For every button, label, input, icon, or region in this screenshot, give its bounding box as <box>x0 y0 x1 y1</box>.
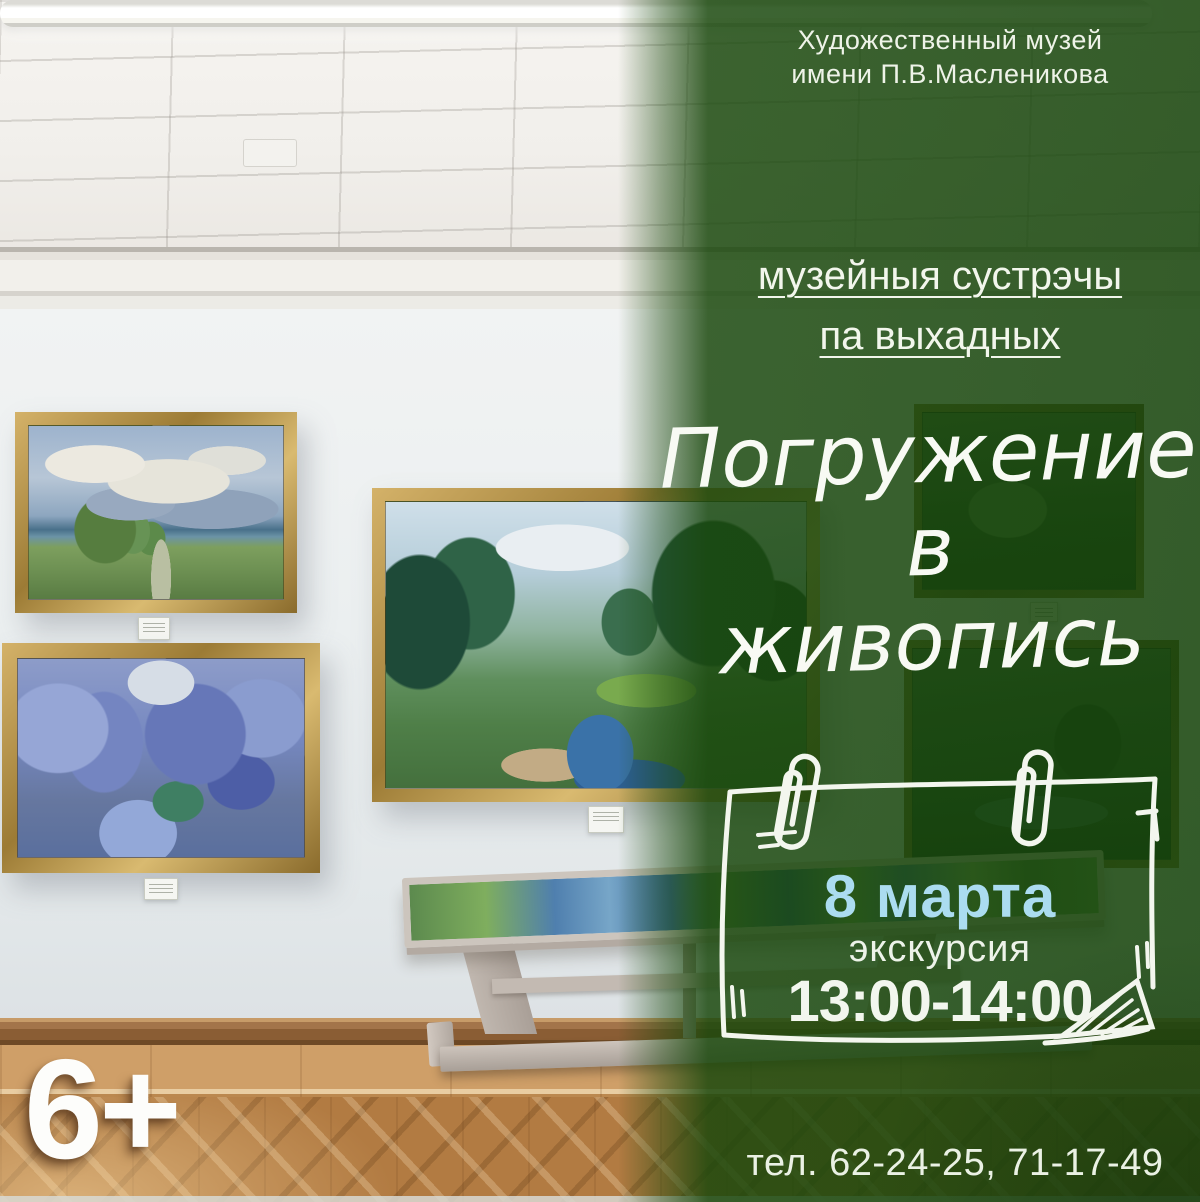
event-title: Погружение в живопись <box>647 402 1200 694</box>
series-heading: музейныя сустрэчы па выхадных <box>690 246 1190 366</box>
event-poster: Художественный музей имени П.В.Масленико… <box>0 0 1200 1202</box>
series-line1: музейныя сустрэчы <box>758 254 1122 298</box>
paperclip-icon <box>774 754 820 850</box>
paperclip-icon <box>1013 750 1052 845</box>
series-line2: па выхадных <box>820 314 1061 358</box>
age-rating-badge: 6+ <box>24 1028 244 1192</box>
event-date: 8 марта <box>720 862 1160 931</box>
event-title-line1: Погружение <box>647 402 1200 507</box>
phone-numbers: тел. 62-24-25, 71-17-49 <box>720 1142 1190 1185</box>
event-title-line2: в <box>649 496 1200 601</box>
event-kind: экскурсия <box>720 928 1160 971</box>
museum-name: Художественный музей имени П.В.Масленико… <box>700 24 1200 92</box>
museum-name-line1: Художественный музей <box>700 24 1200 58</box>
event-title-line3: живопись <box>651 589 1200 694</box>
museum-name-line2: имени П.В.Масленикова <box>700 58 1200 92</box>
event-time: 13:00-14:00 <box>720 968 1160 1035</box>
